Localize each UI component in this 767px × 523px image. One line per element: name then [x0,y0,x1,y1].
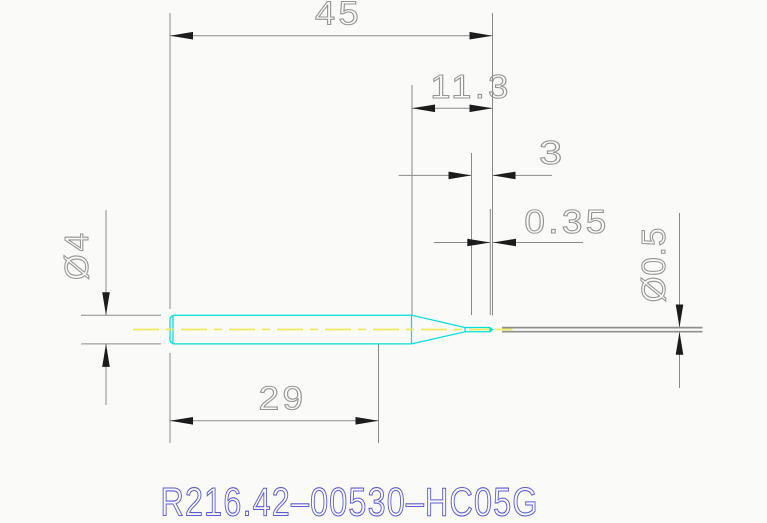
svg-text:0.35: 0.35 [524,204,609,241]
svg-text:3: 3 [539,134,566,171]
svg-text:11.3: 11.3 [430,69,511,105]
svg-text:R216.42–00530–HC05G: R216.42–00530–HC05G [161,479,539,523]
svg-text:45: 45 [315,0,362,32]
svg-text:29: 29 [259,380,307,417]
svg-text:Ø4: Ø4 [58,230,95,280]
svg-text:Ø0.5: Ø0.5 [635,227,672,303]
